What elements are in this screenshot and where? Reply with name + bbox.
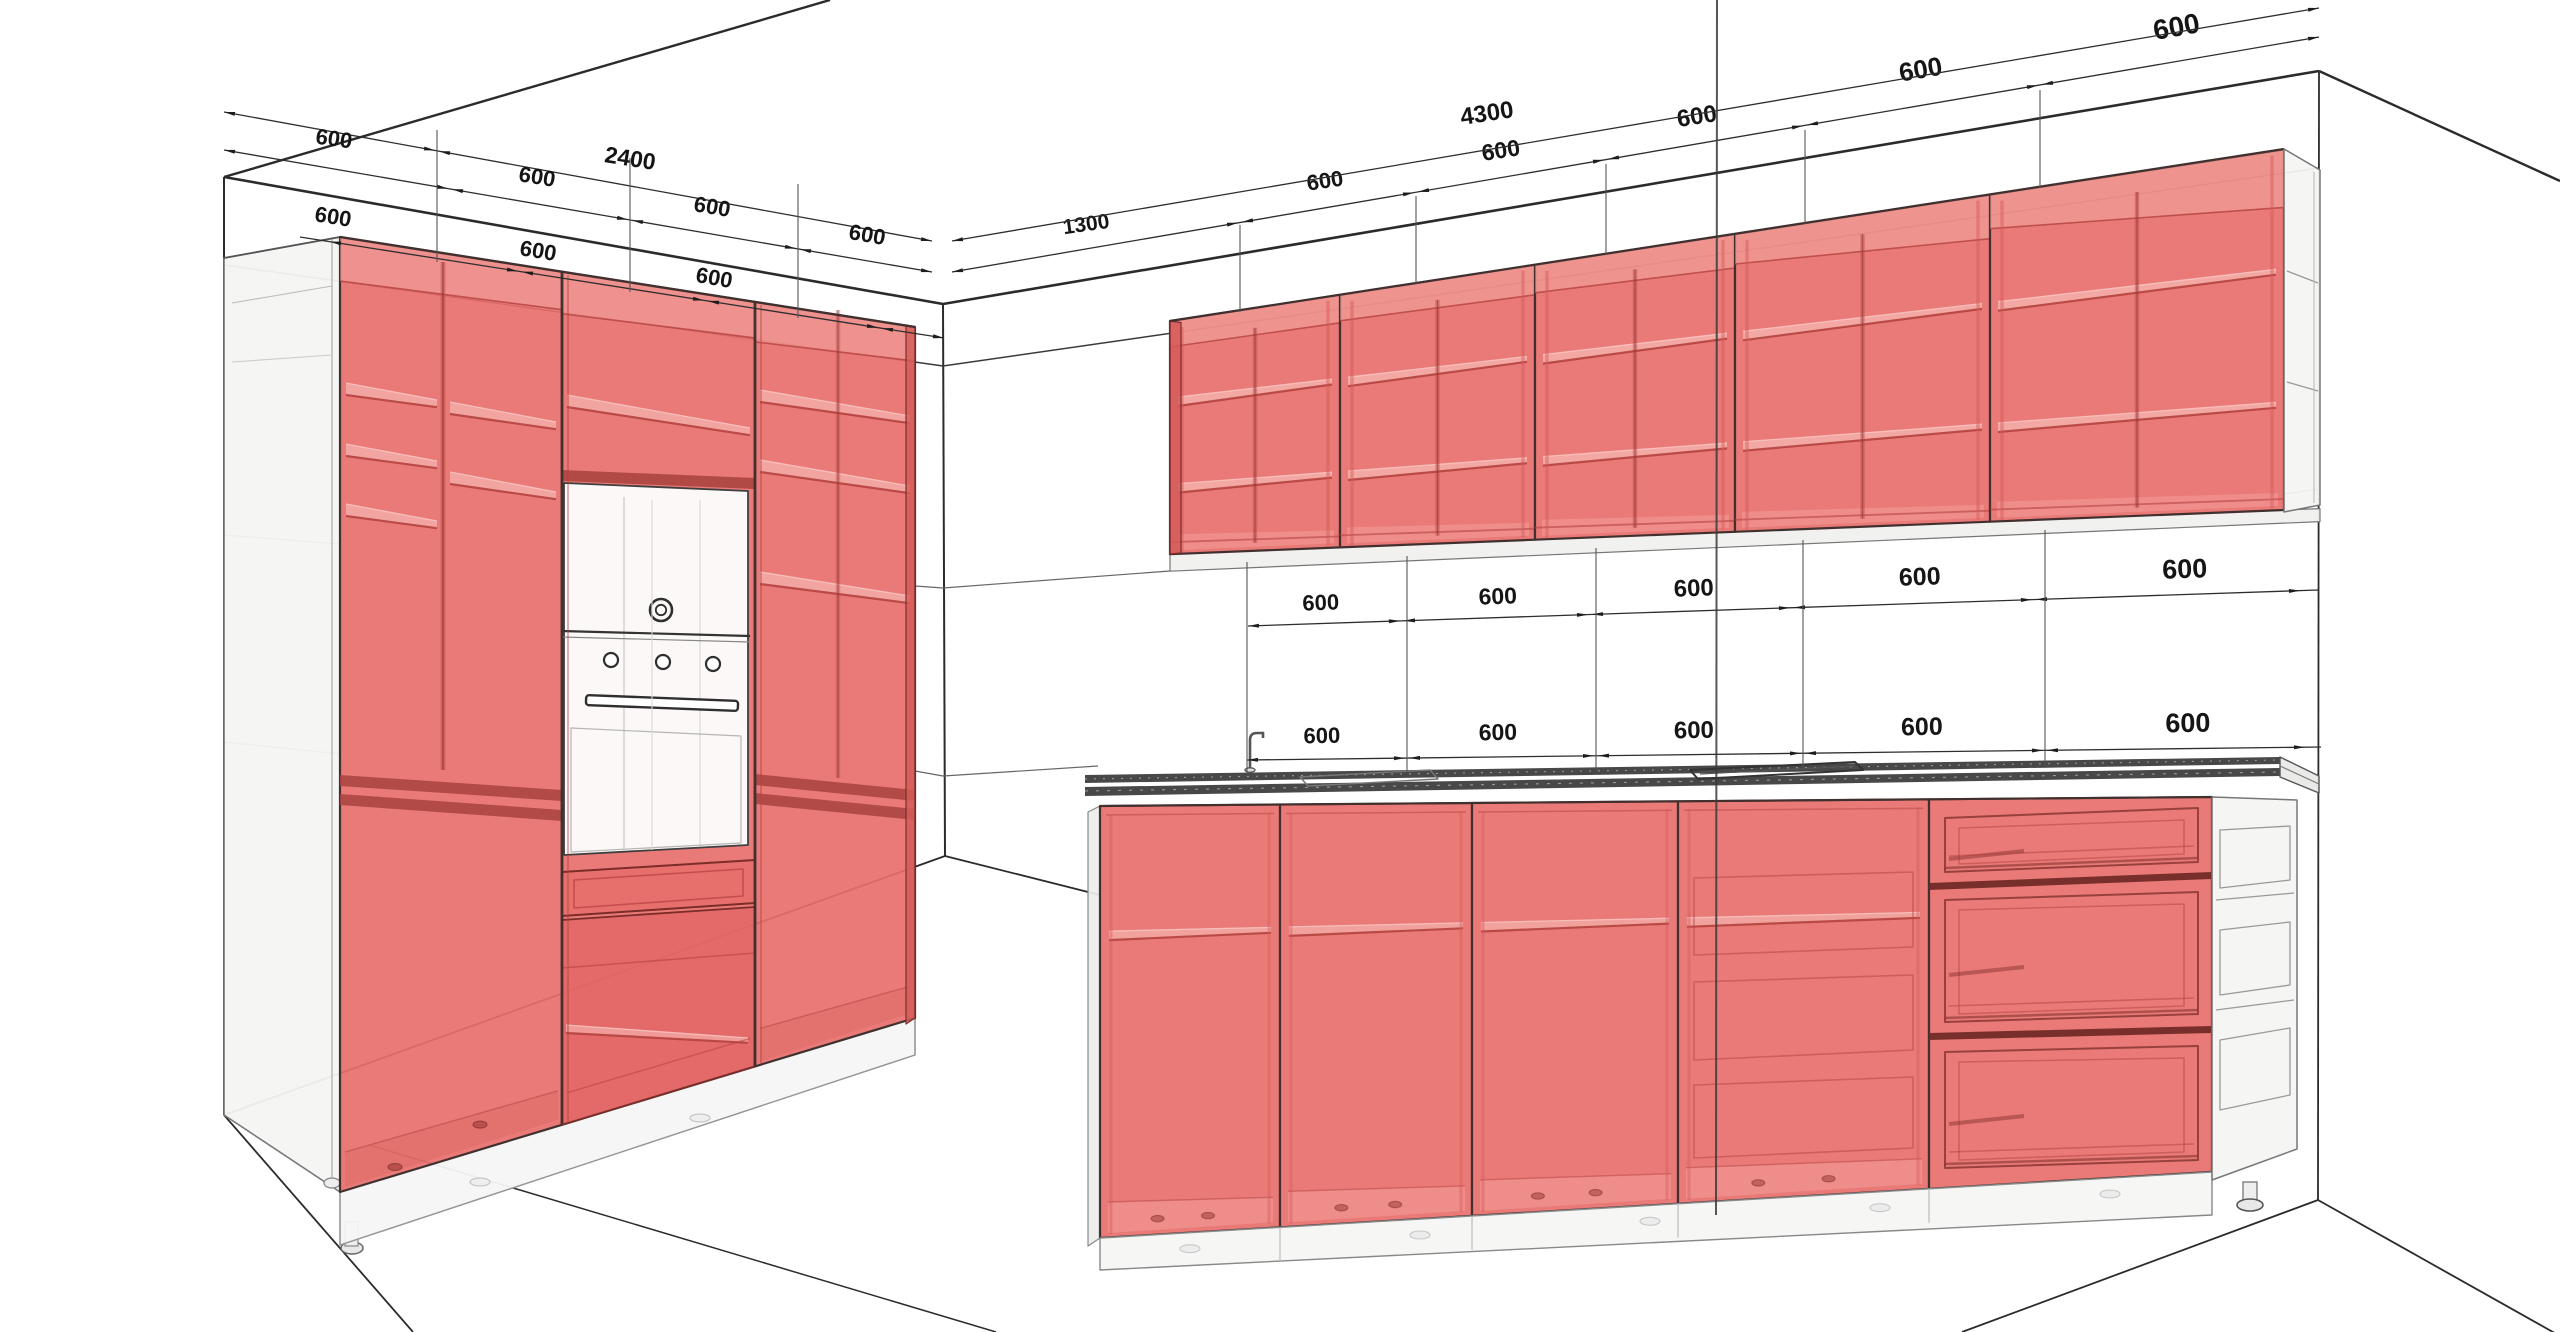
svg-text:600: 600 (1901, 713, 1943, 742)
svg-text:600: 600 (2162, 553, 2208, 585)
svg-text:600: 600 (1898, 562, 1941, 591)
svg-text:600: 600 (1478, 582, 1517, 609)
svg-text:600: 600 (1303, 723, 1340, 749)
svg-text:600: 600 (1674, 717, 1715, 745)
svg-text:600: 600 (1478, 719, 1517, 746)
svg-text:600: 600 (314, 124, 354, 154)
svg-text:600: 600 (1673, 574, 1714, 602)
svg-text:600: 600 (2165, 708, 2211, 739)
svg-text:600: 600 (1302, 589, 1340, 615)
